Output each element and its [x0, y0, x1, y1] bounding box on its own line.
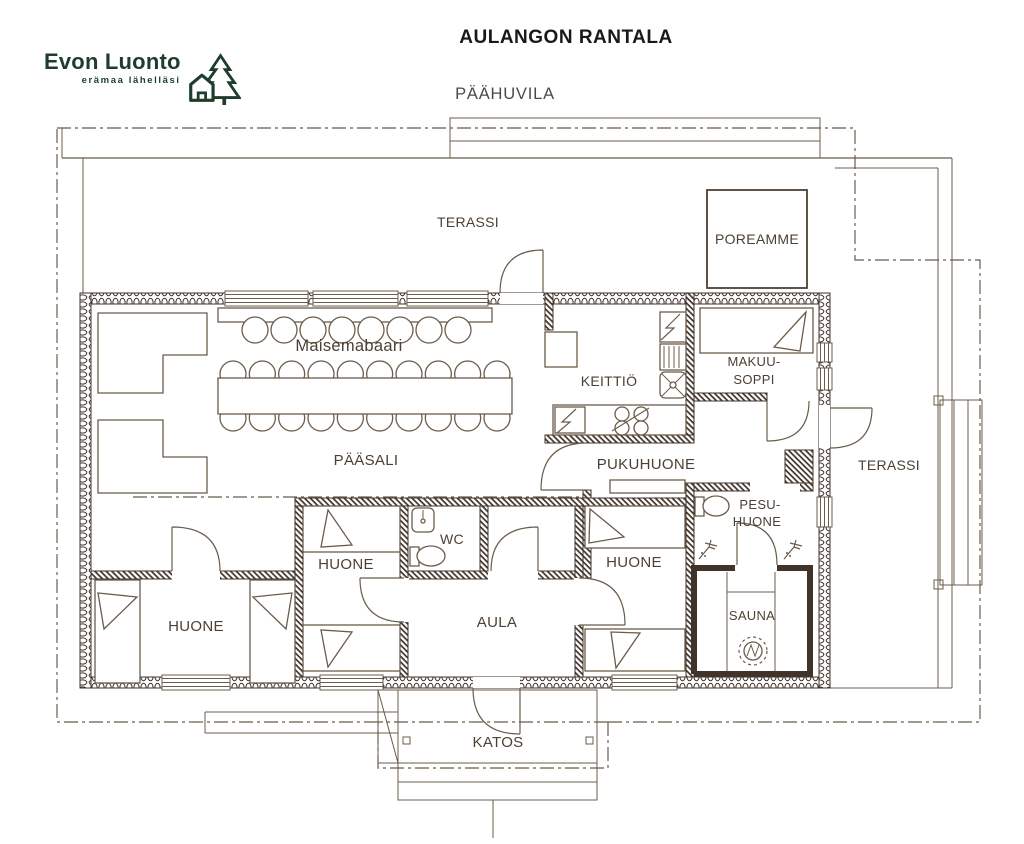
platform-upper [98, 313, 207, 393]
room-label-makuusoppi-2: SOPPI [733, 372, 774, 387]
platform-lower [98, 420, 207, 493]
pier [450, 118, 820, 158]
room-label-terassi-right: TERASSI [858, 457, 920, 473]
room-label-pukuhuone: PUKUHUONE [597, 456, 696, 473]
exterior-stairs-right [934, 396, 982, 589]
room-label-pesuhuone-1: PESU- [739, 497, 780, 512]
katos-deck [378, 690, 597, 838]
shower-icon [784, 540, 802, 559]
room-label-huone-right: HUONE [606, 554, 662, 571]
shower-icon [699, 540, 717, 559]
room-label-aula: AULA [477, 614, 517, 631]
room-label-pesuhuone-2: HUONE [733, 514, 781, 529]
room-label-makuusoppi-1: MAKUU- [727, 354, 780, 369]
dining-table [218, 378, 512, 414]
floor-plan-drawing: TERASSI POREAMME Maisemabaari KEITTIÖ MA… [0, 0, 1024, 844]
floor-plan-page: AULANGON RANTALA PÄÄHUVILA Evon Luonto e… [0, 0, 1024, 844]
shower-icons [699, 540, 802, 559]
room-label-paasali: PÄÄSALI [334, 452, 399, 469]
washroom-fixtures [695, 496, 729, 516]
terrace-step-block [785, 450, 813, 483]
room-label-wc: WC [440, 531, 464, 547]
bench [610, 480, 685, 493]
room-label-huone-left: HUONE [168, 618, 224, 635]
room-label-katos: KATOS [473, 734, 524, 751]
room-label-huone-middle: HUONE [318, 556, 374, 573]
room-label-terassi-top: TERASSI [437, 214, 499, 230]
room-label-sauna: SAUNA [729, 608, 775, 623]
room-label-maisemabaari: Maisemabaari [295, 337, 402, 355]
roof-outline [57, 128, 980, 768]
room-label-keittio: KEITTIÖ [581, 372, 638, 389]
room-label-poreamme: POREAMME [715, 231, 799, 247]
